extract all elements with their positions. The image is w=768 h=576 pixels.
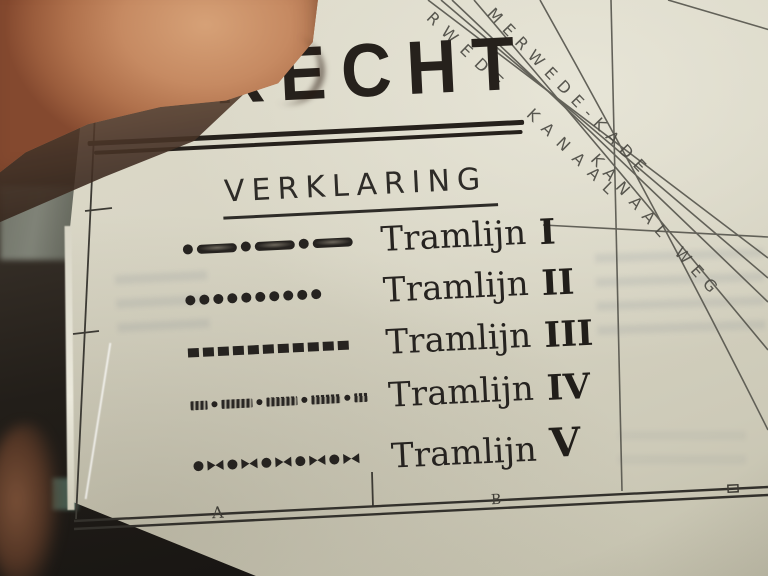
legend-heading: VERKLARING	[221, 161, 498, 219]
tramline-5-pattern	[193, 453, 365, 471]
photo-of-utrecht-tram-map: MERWEDE-KADE RWEDE KANAAL KANAAL WEG A B…	[0, 0, 768, 576]
legend-numeral: II	[541, 261, 576, 304]
tramline-2-pattern	[185, 287, 357, 305]
legend-numeral: I	[538, 211, 556, 253]
legend-label: Tramlijn	[385, 316, 532, 363]
legend-numeral: V	[548, 418, 581, 466]
tramline-1-pattern	[183, 236, 355, 254]
legend-row-tramlijn-3: Tramlijn III	[187, 315, 594, 371]
tramline-4-pattern	[190, 393, 362, 410]
legend-numeral: IV	[546, 365, 591, 408]
legend-row-tramlijn-1: Tramlijn I	[182, 213, 556, 267]
legend-label: Tramlijn	[387, 369, 534, 416]
legend-row-tramlijn-5: Tramlijn V	[193, 429, 582, 484]
legend-numeral: III	[543, 312, 594, 355]
legend-row-tramlijn-4: Tramlijn IV	[190, 368, 591, 424]
legend-label: Tramlijn	[382, 264, 529, 311]
tramline-3-pattern	[188, 340, 360, 357]
legend-label: Tramlijn	[380, 213, 527, 260]
legend-label: Tramlijn	[390, 430, 537, 477]
legend-row-tramlijn-2: Tramlijn II	[185, 264, 576, 319]
